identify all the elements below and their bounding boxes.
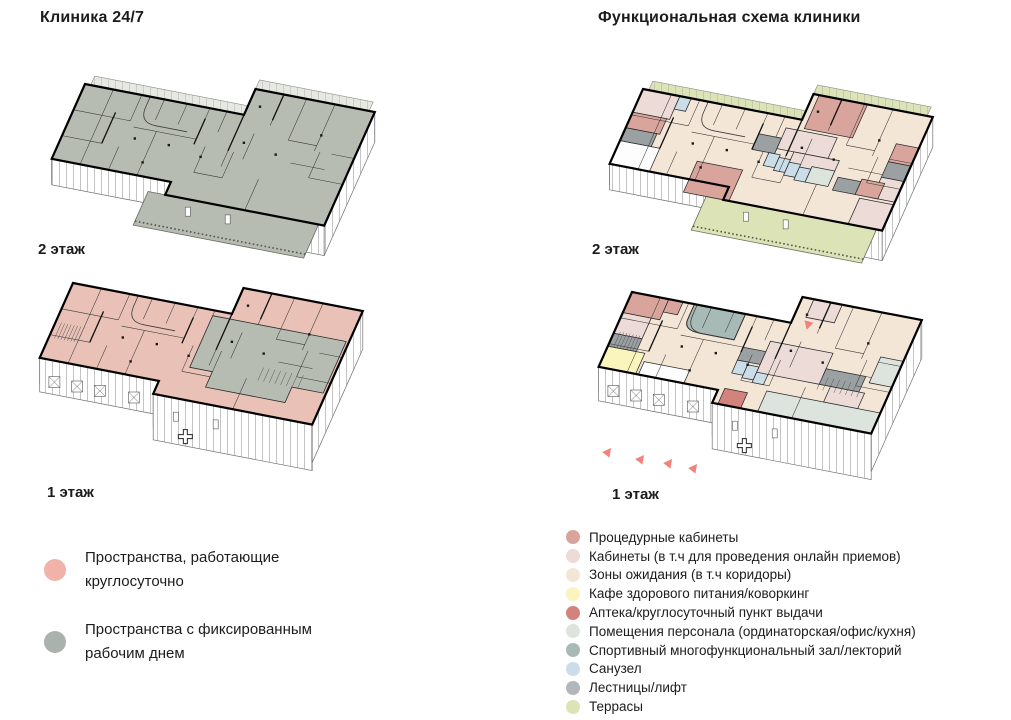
scheme-title: Функциональная схема клиники: [598, 9, 861, 27]
entrance-arrow-icon: [663, 456, 676, 468]
legend-item: Кабинеты (в т.ч для проведения онлайн пр…: [566, 547, 916, 566]
entrance-arrow-icon: [635, 452, 648, 464]
legend-functional: Процедурные кабинетыКабинеты (в т.ч для …: [566, 528, 916, 716]
legend-item: Пространства, работающие круглосуточно: [44, 546, 361, 594]
floor-label-right-1: 1 этаж: [612, 486, 659, 503]
legend-item: Аптека/круглосуточный пункт выдачи: [566, 603, 916, 622]
legend-color-dot: [44, 631, 66, 653]
facade-door: [173, 412, 178, 421]
facade-door: [213, 420, 218, 429]
floor-plan-right-1: [599, 292, 922, 480]
legend-item: Зоны ожидания (в т.ч коридоры): [566, 566, 916, 585]
floor-label-left-1: 1 этаж: [47, 484, 94, 501]
page: Клиника 24/7 Функциональная схема клиник…: [0, 0, 1011, 720]
legend-item-label: Террасы: [589, 699, 643, 714]
legend-item: Лестницы/лифт: [566, 678, 916, 697]
legend-item: Кафе здорового питания/коворкинг: [566, 584, 916, 603]
legend-color-dot: [566, 568, 580, 582]
legend-color-dot: [566, 530, 580, 544]
legend-color-dot: [566, 681, 580, 695]
legend-color-dot: [566, 643, 580, 657]
entrance-arrow-icon: [688, 461, 701, 473]
legend-item-label: Спортивный многофункциональный зал/лекто…: [589, 643, 902, 658]
legend-item-label: Кафе здорового питания/коворкинг: [589, 586, 809, 601]
facade-door: [743, 212, 748, 221]
legend-item: Помещения персонала (ординаторская/офис/…: [566, 622, 916, 641]
legend-item-label: Пространства, работающие круглосуточно: [85, 546, 361, 594]
legend-color-dot: [566, 624, 580, 638]
floor-label-right-2: 2 этаж: [592, 241, 639, 258]
legend-item: Спортивный многофункциональный зал/лекто…: [566, 641, 916, 660]
legend-item: Пространства с фиксированным рабочим дне…: [44, 618, 361, 666]
facade-door: [772, 429, 777, 438]
legend-item: Процедурные кабинеты: [566, 528, 916, 547]
floor-plan-left-2: [52, 76, 375, 258]
legend-color-dot: [566, 587, 580, 601]
legend-color-dot: [566, 662, 580, 676]
facade-door: [732, 421, 737, 430]
facade-door: [185, 207, 190, 216]
legend-item-label: Пространства с фиксированным рабочим дне…: [85, 618, 361, 666]
legend-item: Террасы: [566, 697, 916, 716]
legend-item-label: Помещения персонала (ординаторская/офис/…: [589, 624, 916, 639]
clinic-title: Клиника 24/7: [40, 9, 144, 27]
facade-door: [783, 220, 788, 229]
legend-color-dot: [566, 549, 580, 563]
floor-plan-left-1: [40, 283, 363, 471]
legend-item-label: Кабинеты (в т.ч для проведения онлайн пр…: [589, 549, 901, 564]
floor-label-left-2: 2 этаж: [38, 241, 85, 258]
legend-color-dot: [44, 559, 66, 581]
legend-item-label: Санузел: [589, 661, 642, 676]
legend-color-dot: [566, 606, 580, 620]
facade-door: [225, 215, 230, 224]
legend-item-label: Процедурные кабинеты: [589, 530, 738, 545]
floor-plan-right-2: [610, 81, 933, 263]
legend-item-label: Лестницы/лифт: [589, 680, 687, 695]
legend-item-label: Зоны ожидания (в т.ч коридоры): [589, 567, 791, 582]
legend-item-label: Аптека/круглосуточный пункт выдачи: [589, 605, 823, 620]
legend-color-dot: [566, 700, 580, 714]
entrance-arrow-icon: [602, 445, 615, 457]
legend-item: Санузел: [566, 660, 916, 679]
